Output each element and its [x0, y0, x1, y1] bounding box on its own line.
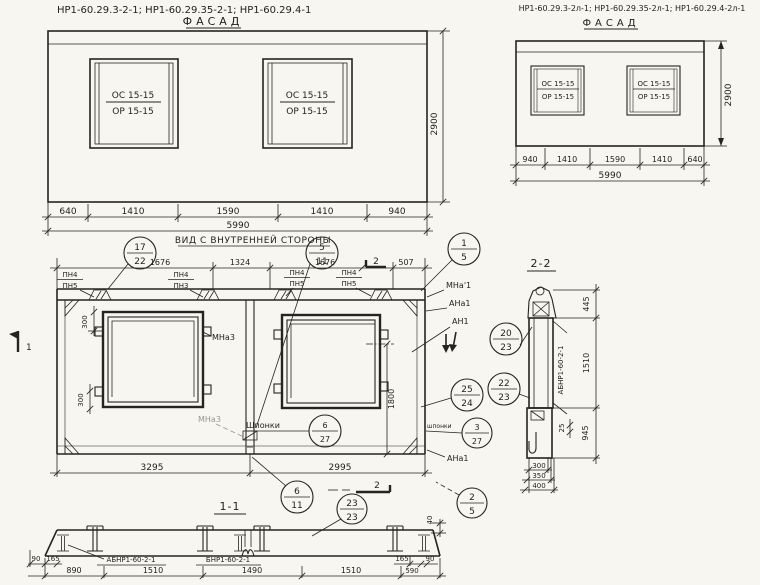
section-marker-2-bottom: 2	[328, 481, 390, 492]
callout-6-11: 6 11	[252, 457, 313, 513]
section-2-2-bottom-dimensions: 300 350 400	[520, 458, 558, 493]
dim-label: 2995	[329, 463, 352, 473]
dim-label: 890	[66, 566, 81, 575]
callout-6-27: 6 27	[309, 415, 341, 447]
shponki-left: Шпонки	[246, 421, 309, 431]
callout-5-11: 5 11	[256, 237, 338, 428]
section-1-1-drawing: 1-1 АБНР1-60-2-1 БНР1-60-2-1 90 165 165	[27, 500, 446, 579]
section-2-2-element	[527, 287, 556, 458]
facade-left-window-1: ОС 15-15 ОР 15-15	[90, 59, 178, 148]
facade-left-drawing: ФАСАД ОС 15-15 ОР 15-15 ОС 15-15 ОР 15-1…	[42, 15, 450, 236]
shponki-right: шпонки	[426, 423, 462, 433]
window-mark-bottom: ОР 15-15	[638, 93, 670, 101]
callout-bottom: 11	[291, 501, 302, 511]
embed-label: МНа'1	[446, 281, 471, 290]
callout-bottom: 11	[316, 257, 327, 267]
callout-bottom: 23	[346, 513, 357, 523]
callout-bottom: 23	[500, 343, 511, 353]
callout-bottom: 24	[461, 399, 473, 409]
joint-lines	[245, 530, 251, 547]
dim-300-bottom: 300	[77, 384, 93, 414]
dim-label: 90	[32, 555, 41, 563]
right-variant-codes: НР1-60.29.3-2л-1; НР1-60.29.35-2л-1; НР1…	[519, 4, 746, 13]
dim-label: 1410	[652, 155, 672, 164]
callout-3-27: 3 27	[462, 418, 492, 448]
callout-top: 5	[319, 243, 325, 253]
dim-label: 507	[398, 258, 413, 267]
facade-right-bottom-dimensions: 940 1410 1590 1410 640 5990	[510, 146, 710, 186]
window-mark-bottom: ОР 15-15	[542, 93, 574, 101]
dim-label: 1410	[557, 155, 577, 164]
anchor-tab	[274, 384, 282, 393]
callout-25-24: 25 24	[421, 379, 483, 411]
dim-label: 945	[581, 425, 590, 440]
dim-height-label: 2900	[430, 112, 440, 135]
dim-label: 1510	[582, 353, 591, 373]
callout-bottom: 27	[472, 437, 482, 446]
part-label: БНР1-60-2-1	[206, 556, 250, 564]
dim-300-top: 300	[81, 306, 102, 336]
callout-top: 1	[461, 239, 467, 249]
dim-label: 940	[388, 207, 405, 217]
window-mark-top: ОС 15-15	[638, 80, 671, 88]
shponki-label: шпонки	[427, 423, 452, 430]
dim-label: 1324	[230, 258, 250, 267]
window-mark-top: ОС 15-15	[286, 91, 328, 101]
dim-label: 1410	[311, 207, 334, 217]
callout-top: 20	[500, 329, 512, 339]
dim-label: 400	[532, 482, 545, 490]
facade-right-height-dimension: 2900	[704, 41, 734, 146]
embed-label: АН1	[452, 317, 469, 326]
dim-label: 40	[426, 516, 434, 525]
section-marker-2-top: 2	[366, 257, 386, 267]
section-1-1-title: 1-1	[220, 500, 241, 513]
facade-left-height-dimension: 2900	[427, 28, 450, 205]
callout-top: 17	[134, 243, 145, 253]
facade-right-window-1: ОС 15-15 ОР 15-15	[531, 66, 584, 115]
top-hook	[528, 287, 556, 318]
dim-label: 165	[46, 555, 59, 563]
anchor-tab	[380, 330, 388, 339]
window-mark-top: ОС 15-15	[112, 91, 154, 101]
dim-label: 3295	[141, 463, 164, 473]
facade-left-outline	[48, 31, 427, 202]
section-2-2-title: 2-2	[531, 257, 552, 270]
dim-label: 300	[77, 393, 85, 406]
engineering-drawing: НР1-60.29.3-2-1; НР1-60.29.35-2-1; НР1-6…	[0, 0, 760, 585]
dim-label: 300	[532, 462, 545, 470]
callout-top: 25	[461, 385, 472, 395]
embed-label-bottom: ПН5	[342, 280, 357, 288]
dim-label: 640	[687, 155, 702, 164]
callout-2-5: 2 5	[436, 482, 487, 518]
section-marker-1-left: 1	[9, 331, 32, 353]
facade-left-bottom-dimensions: 640 1410 1590 1410 940 5990	[42, 202, 433, 236]
section-marker-label: 2	[373, 257, 379, 267]
dim-label: 1510	[143, 566, 163, 575]
inner-window-1	[95, 312, 211, 407]
section-marker-label: 1	[26, 343, 32, 353]
inner-view-bottom-dimensions: 3295 2995	[50, 454, 432, 477]
callout-bottom: 5	[469, 507, 475, 517]
part-label: АБНР1-60-2-1	[557, 346, 565, 395]
dim-label: 1490	[242, 566, 262, 575]
callout-top: 22	[498, 379, 509, 389]
section-arrows	[442, 332, 457, 353]
inner-window-2	[274, 315, 388, 408]
lower-hook	[529, 432, 536, 453]
facade-right-drawing: ФАСАД ОС 15-15 ОР 15-15 ОС 15-15 ОР 15-1…	[510, 18, 734, 186]
part-label: АБНР1-60-2-1	[107, 556, 156, 564]
section-1-1-outline	[45, 530, 440, 556]
embed-label: МНа3	[212, 333, 235, 342]
callout-bottom: 5	[461, 253, 467, 263]
mna3-faint: МНа3	[198, 415, 246, 438]
embed-label-top: ПН4	[174, 271, 190, 279]
dim-total-label: 5990	[599, 171, 622, 181]
dim-label: 590	[405, 567, 418, 575]
callout-22-23: 22 23	[488, 373, 530, 405]
dim-label: 165	[395, 555, 408, 563]
top-edge-ribs	[89, 290, 392, 300]
dim-40: 40	[426, 516, 446, 537]
dim-total-label: 5990	[227, 221, 250, 231]
callout-top: 2	[469, 493, 475, 503]
embed-label: АНа1	[447, 454, 468, 463]
part-label-callout: АБНР1-60-2-1	[553, 321, 567, 414]
callout-20-23: 20 23	[490, 323, 532, 355]
section-marker-label: 2	[374, 481, 380, 491]
callout-top: 23	[346, 499, 357, 509]
dim-label: 1410	[122, 207, 145, 217]
inner-view-drawing: ВИД С ВНУТРЕННЕЙ СТОРОНЫ 1676 1324 1676 …	[9, 234, 471, 537]
mna3-label: МНа3	[203, 332, 235, 342]
window-mark-top: ОС 15-15	[542, 80, 575, 88]
callout-top: 3	[474, 423, 479, 432]
section-2-2-drawing: 2-2 АБНР1-60-2-1 445 1510 945 25	[520, 257, 600, 493]
window-mark-bottom: ОР 15-15	[112, 107, 154, 117]
window-mark-bottom: ОР 15-15	[286, 107, 328, 117]
dim-label: 1590	[605, 155, 625, 164]
corner-corbels	[65, 300, 417, 454]
callout-top: 6	[322, 421, 327, 430]
dim-label: 90	[426, 555, 435, 563]
dim-label: 1510	[341, 566, 361, 575]
pn-embed-labels: ПН4 ПН5 ПН4 ПН3 ПН4 ПН5 ПН4 ПН5	[57, 269, 371, 297]
title-block: НР1-60.29.3-2-1; НР1-60.29.35-2-1; НР1-6…	[57, 4, 745, 16]
embed-label-top: ПН4	[63, 271, 79, 279]
inner-view-title: ВИД С ВНУТРЕННЕЙ СТОРОНЫ	[175, 234, 331, 246]
dim-label: 640	[59, 207, 76, 217]
facade-left-window-2: ОС 15-15 ОР 15-15	[263, 59, 352, 148]
anchor-tab	[274, 330, 282, 339]
callout-bottom: 23	[498, 393, 509, 403]
drawing-sheet: НР1-60.29.3-2-1; НР1-60.29.35-2-1; НР1-6…	[0, 0, 760, 585]
element-body	[529, 318, 553, 408]
callout-circles: 17 22 5 11 1 5 20 23 25 24 22 23 6 27	[108, 233, 532, 536]
facade-right-window-2: ОС 15-15 ОР 15-15	[627, 66, 680, 115]
dim-label: 940	[522, 155, 537, 164]
shponki-label: Шпонки	[246, 421, 280, 430]
dim-label: 350	[532, 472, 545, 480]
callout-bottom: 22	[134, 257, 145, 267]
dim-label: 25	[558, 424, 566, 433]
callout-17-22: 17 22	[108, 237, 156, 289]
callout-top: 6	[294, 487, 300, 497]
dim-height-label: 2900	[724, 83, 734, 106]
embed-label: МНа3	[198, 415, 221, 424]
facade-right-title: ФАСАД	[582, 18, 639, 29]
embed-label-top: ПН4	[342, 269, 358, 277]
embed-label: АНа1	[449, 299, 470, 308]
embed-label-top: ПН4	[290, 269, 306, 277]
dim-label: 445	[582, 296, 591, 311]
dim-label: 1800	[387, 389, 396, 409]
callout-bottom: 27	[320, 435, 330, 444]
facade-left-title: ФАСАД	[183, 15, 244, 28]
dim-label: 300	[81, 315, 89, 328]
dim-label: 1590	[217, 207, 240, 217]
